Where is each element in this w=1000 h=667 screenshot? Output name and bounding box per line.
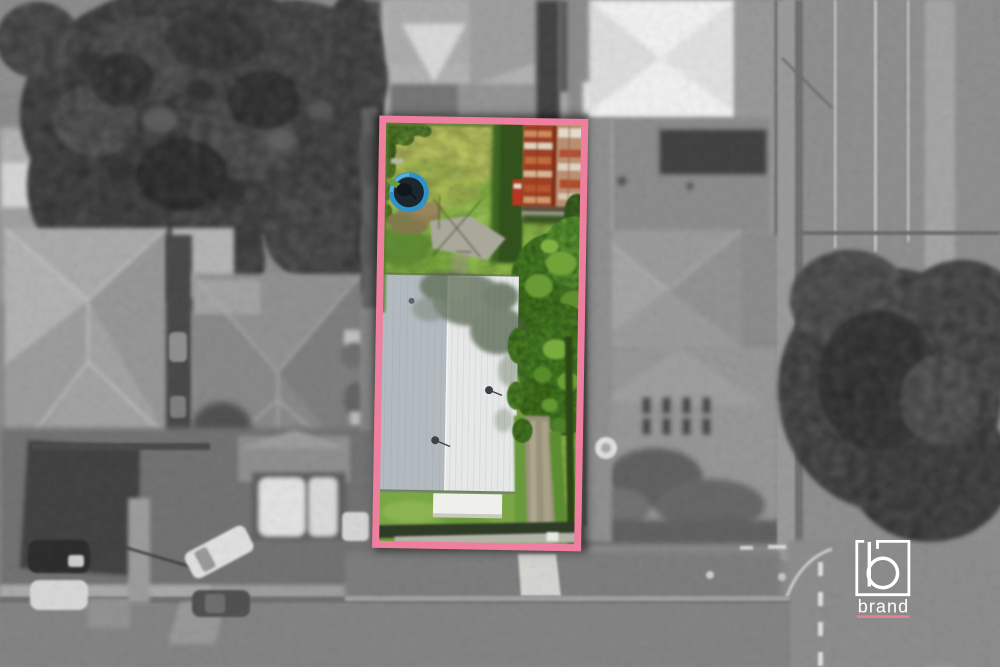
svg-text:brand: brand — [858, 597, 910, 617]
